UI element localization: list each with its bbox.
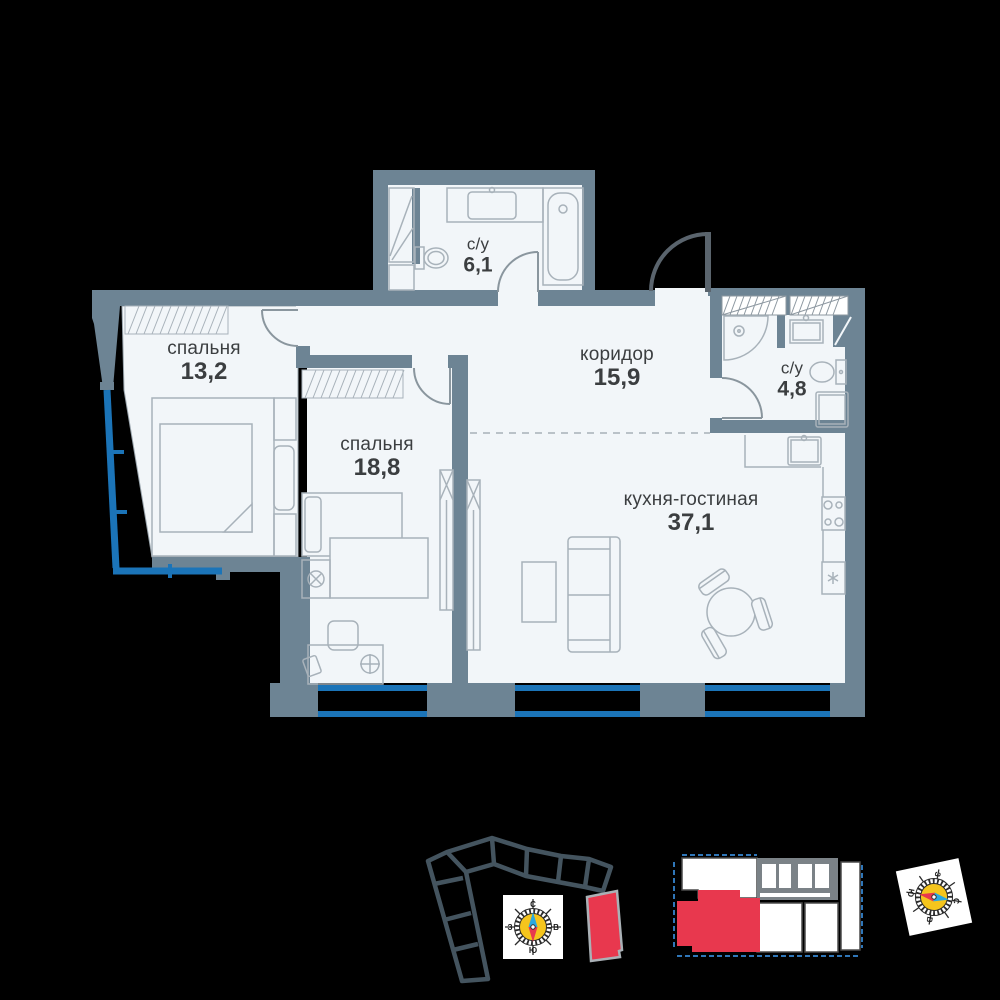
floor-plan-svg: С В Ю З — [0, 0, 1000, 1000]
compass-letter-e: В — [553, 923, 559, 932]
entrance-opening-floor — [655, 288, 708, 306]
floor-minimap[interactable] — [674, 855, 862, 956]
minimap-unit — [841, 862, 860, 950]
window-living-2 — [705, 685, 830, 691]
windows — [318, 685, 830, 717]
wardrobe-bedroom-2 — [302, 370, 404, 398]
kitchen-living-floor — [468, 368, 845, 683]
compass-card: С В Ю З — [503, 895, 563, 959]
floor-plan-page: С В Ю З — [0, 0, 1000, 1000]
blanket — [330, 538, 428, 598]
compass-card-rotated: С В Ю З — [896, 858, 972, 936]
apartment-plan — [92, 170, 865, 717]
compass-letter-n: С — [530, 900, 536, 909]
compass-letter-w: З — [507, 923, 512, 932]
window-bedroom-2 — [318, 685, 427, 691]
minimap-unit — [805, 903, 838, 952]
vent-shafts — [722, 296, 848, 315]
compass-letter-s: Ю — [906, 888, 916, 898]
window-living-1 — [515, 685, 640, 691]
building-highlighted-section — [587, 891, 622, 961]
compass-letter-s: Ю — [529, 946, 537, 955]
entrance-door — [651, 232, 711, 292]
bedroom-1-furniture — [152, 398, 296, 556]
minimap-highlighted-apartment — [677, 890, 760, 952]
minimap-unit — [757, 903, 802, 952]
wardrobe-bedroom-1 — [125, 306, 228, 334]
